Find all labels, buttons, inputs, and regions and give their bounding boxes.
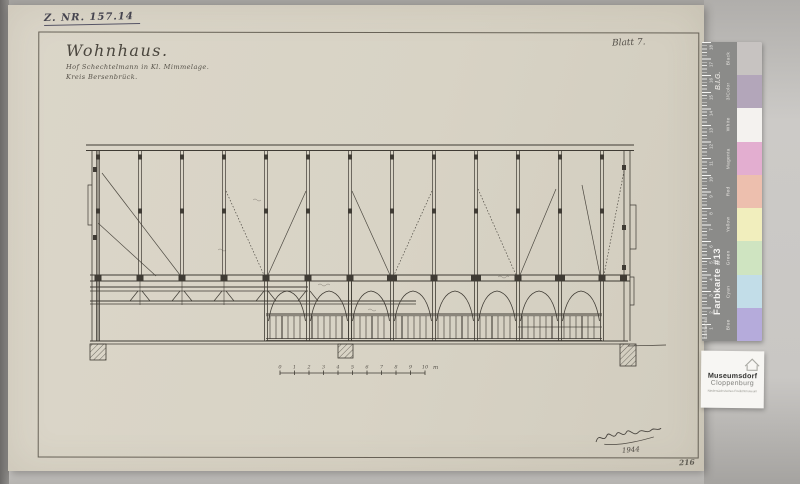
scan-edge-bottom bbox=[9, 470, 704, 484]
card-brand: B.I.G. bbox=[715, 46, 722, 90]
scale-tick-label: 10 bbox=[422, 365, 429, 371]
ruler-number: 6 bbox=[709, 242, 714, 250]
color-patch-red bbox=[737, 175, 762, 209]
color-patch-white bbox=[737, 108, 762, 142]
scale-tick-label: 4 bbox=[335, 365, 339, 371]
ruler-number: 17 bbox=[709, 60, 714, 68]
patch-label: Cyan bbox=[724, 275, 734, 308]
scale-tick-label: 6 bbox=[365, 365, 369, 371]
ruler-number: 18 bbox=[709, 44, 714, 52]
scale-tick-label: 5 bbox=[351, 365, 354, 371]
color-patch-green bbox=[737, 241, 762, 275]
scale-tick-label: 8 bbox=[394, 365, 397, 371]
drawing-title: Wohnhaus. bbox=[66, 41, 209, 60]
ruler-number: 16 bbox=[709, 77, 714, 85]
ruler-number: 15 bbox=[709, 93, 714, 101]
drawing-sheet: Z. NR. 157.14 Wohnhaus. Hof Schechtelman… bbox=[8, 5, 704, 471]
museum-city: Cloppenburg bbox=[701, 380, 764, 388]
patch-label: Black bbox=[724, 42, 734, 75]
page-number: 216 bbox=[679, 458, 695, 468]
ruler-number: 5 bbox=[709, 259, 714, 267]
patch-label: Red bbox=[724, 175, 734, 208]
color-calibration-card: B.I.G. Farbkarte #13 Kommentar Black3/Co… bbox=[702, 42, 762, 341]
ruler-number: 8 bbox=[709, 209, 714, 217]
ruler-number: 1 bbox=[709, 325, 714, 333]
color-patch-magenta bbox=[737, 142, 762, 176]
scale-tick-label: 2 bbox=[306, 365, 310, 371]
color-patch-3-color bbox=[737, 75, 762, 109]
ruler-number: 3 bbox=[709, 292, 714, 300]
drawing-subtitle-1: Hof Schechtelmann in Kl. Mimmelage. bbox=[66, 63, 209, 73]
scale-tick-label: 9 bbox=[409, 365, 413, 371]
title-block: Wohnhaus. Hof Schechtelmann in Kl. Mimme… bbox=[66, 41, 209, 83]
ruler-number: 14 bbox=[709, 110, 714, 118]
ruler-number: 2 bbox=[709, 308, 714, 316]
scale-tick-label: 3 bbox=[322, 365, 325, 371]
ruler-number: 10 bbox=[709, 176, 714, 184]
card-title: Farbkarte #13 bbox=[712, 175, 723, 315]
archive-number-note: Z. NR. 157.14 bbox=[44, 11, 140, 26]
scale-tick-label: 7 bbox=[380, 365, 384, 371]
patch-label: Yellow bbox=[724, 208, 734, 241]
color-patch-yellow bbox=[737, 208, 762, 242]
house-icon bbox=[743, 357, 761, 372]
patch-label: 3/Color bbox=[724, 75, 734, 108]
scale-unit-label: m bbox=[433, 365, 438, 371]
ruler-number: 11 bbox=[709, 159, 714, 167]
ruler-number: 12 bbox=[709, 143, 714, 151]
color-patch-blue bbox=[737, 308, 762, 341]
patch-label: Green bbox=[724, 241, 734, 274]
color-patch-cyan bbox=[737, 275, 762, 309]
drawing-subtitle-2: Kreis Bersenbrück. bbox=[66, 73, 209, 83]
museum-label: Museumsdorf Cloppenburg Niedersächsische… bbox=[701, 351, 765, 409]
patch-label: White bbox=[724, 108, 734, 141]
scale-tick-label: 1 bbox=[293, 365, 296, 371]
patch-label: Magenta bbox=[724, 142, 734, 175]
ruler-number: 4 bbox=[709, 275, 714, 283]
museum-subtitle: Niedersächsisches Freilichtmuseum bbox=[701, 388, 764, 393]
sheet-number: Blatt 7. bbox=[612, 37, 646, 48]
ruler-number: 9 bbox=[709, 192, 714, 200]
patch-label: Blue bbox=[724, 308, 734, 341]
card-comment-label: Kommentar bbox=[703, 293, 708, 339]
ruler-number: 13 bbox=[709, 126, 714, 134]
color-patch-black bbox=[737, 42, 762, 76]
house-section-svg: 012345678910m bbox=[68, 125, 668, 385]
scale-tick-label: 0 bbox=[278, 365, 282, 371]
ruler-number: 7 bbox=[709, 226, 714, 234]
